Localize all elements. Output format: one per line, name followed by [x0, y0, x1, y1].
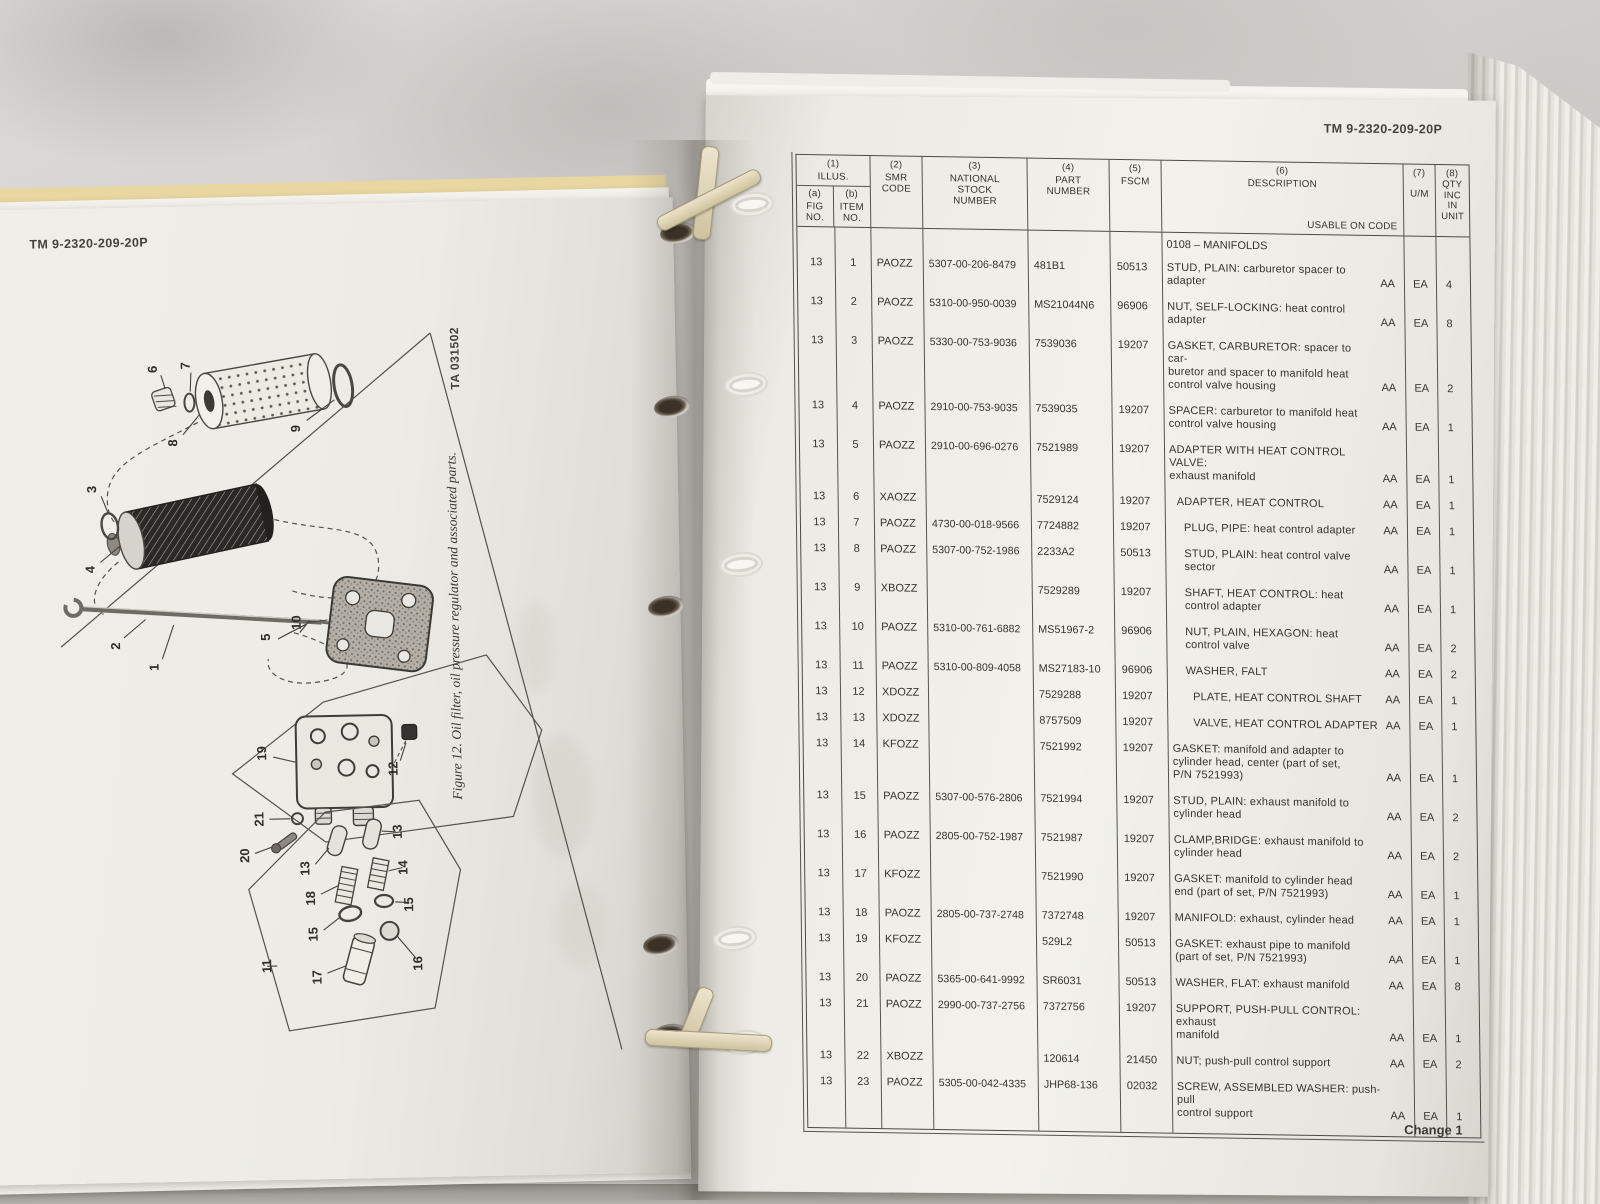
cell-qty: 2 [1446, 1059, 1479, 1086]
usable-on-code: AA [1386, 720, 1401, 733]
cell-part: 7521990 [1036, 871, 1118, 911]
cell-desc: NUT, SELF-LOCKING: heat controladapterAA [1163, 301, 1406, 344]
cell-fig: 13 [805, 828, 843, 868]
cell-desc: PLATE, HEAT CONTROL SHAFTAA [1168, 691, 1410, 721]
cell-smr: PAOZZ [874, 439, 927, 492]
part-label-18: 18 [303, 891, 318, 906]
cell-part: 7539036 [1030, 338, 1113, 404]
cell-fig: 13 [799, 334, 838, 400]
cell-item: 18 [844, 907, 880, 934]
cell-fscm: 19207 [1115, 586, 1167, 626]
header-um: (7)U/M [1404, 164, 1437, 236]
cell-desc: ADAPTER WITH HEAT CONTROL VALVE:exhaust … [1165, 444, 1408, 500]
cell-fscm: 19207 [1118, 833, 1170, 873]
header-nsn: (3)NATIONAL STOCK NUMBER [922, 157, 1028, 230]
cell-nsn: 2805-00-737-2748 [932, 908, 1037, 936]
cell-part: 7724882 [1032, 520, 1114, 547]
cell-fig: 13 [805, 867, 843, 907]
cell-nsn [928, 583, 1033, 624]
cell-desc: MANIFOLD: exhaust, cylinder headAA [1171, 912, 1413, 942]
cell-um: EA [1413, 915, 1445, 942]
cell-qty: 1 [1441, 591, 1474, 631]
cell-um: EA [1408, 551, 1440, 591]
cell-part: 7521994 [1035, 793, 1117, 833]
small-parts-group [325, 817, 400, 986]
cell-smr: XDOZZ [877, 686, 929, 713]
cell-fscm: 50513 [1111, 261, 1163, 301]
cell-nsn: 2910-00-696-0276 [926, 440, 1032, 494]
cell-item: 13 [841, 712, 877, 739]
cell-um: EA [1406, 408, 1438, 448]
cell-nsn: 5330-00-753-9036 [925, 336, 1031, 403]
cell-desc: NUT, PLAIN, HEXAGON: heatcontrol valveAA [1167, 626, 1410, 669]
cell-um: EA [1411, 798, 1443, 838]
cell-smr: PAOZZ [880, 972, 932, 999]
cell-qty: 1 [1442, 695, 1475, 722]
cell-um: EA [1405, 265, 1437, 305]
cell-nsn [929, 687, 1034, 715]
cell-item: 22 [845, 1050, 881, 1077]
cell-fig: 13 [807, 1049, 845, 1076]
cell-item: 7 [839, 517, 875, 544]
part-label-8: 8 [165, 439, 180, 447]
cell-qty: 2 [1441, 630, 1474, 670]
usable-on-code: AA [1381, 382, 1396, 395]
cell-smr: PAOZZ [882, 1076, 935, 1129]
cell-desc: GASKET: exhaust pipe to manifold(part of… [1171, 938, 1414, 981]
cell-fig: 13 [804, 789, 842, 829]
cell-fscm: 19207 [1114, 521, 1166, 548]
cell-item: 23 [846, 1076, 883, 1129]
cell-fig: 13 [806, 971, 844, 998]
cell-um: EA [1411, 746, 1444, 799]
cell-smr: PAOZZ [880, 907, 932, 934]
cell-fig: 13 [801, 542, 839, 582]
part-label-10: 10 [289, 615, 304, 630]
cell-um: EA [1413, 941, 1445, 981]
cell-item: 6 [839, 491, 875, 518]
cell-part: 120614 [1038, 1053, 1120, 1080]
cell-desc: SCREW, ASSEMBLED WASHER: push-pullcontro… [1173, 1081, 1416, 1137]
cell-smr: PAOZZ [877, 660, 929, 687]
usable-on-code: AA [1381, 317, 1396, 330]
cell-um: EA [1407, 447, 1440, 500]
cell-smr: PAOZZ [879, 829, 931, 869]
usable-on-code: AA [1389, 1032, 1404, 1045]
cell-desc: CLAMP,BRIDGE: exhaust manifold tocylinde… [1170, 834, 1413, 877]
cell-item: 19 [844, 933, 880, 973]
cell-fscm: 19207 [1116, 690, 1168, 717]
group-header: 0108 – MANIFOLDS [1166, 239, 1267, 253]
header-part-number: (4)PART NUMBER [1027, 159, 1110, 231]
usable-on-code: AA [1383, 499, 1398, 512]
usable-on-code: AA [1389, 980, 1404, 993]
cell-qty: 2 [1443, 799, 1476, 839]
change-footer: Change 1 [1404, 1122, 1463, 1137]
cell-desc: GASKET, CARBURETOR: spacer to car-bureto… [1164, 340, 1407, 409]
header-qty: (8)QTY INC IN UNIT [1436, 165, 1470, 237]
cell-nsn: 5305-00-042-4335 [934, 1077, 1040, 1131]
cell-smr: PAOZZ [875, 517, 927, 544]
cell-nsn: 5310-00-809-4058 [929, 661, 1034, 689]
cell-fig: 13 [806, 906, 844, 933]
usable-on-code: AA [1383, 525, 1398, 538]
part-label-6: 6 [145, 366, 160, 374]
table-row: 133PAOZZ5330-00-753-9036753903619207GASK… [799, 334, 1472, 410]
cell-desc: STUD, PLAIN: exhaust manifold tocylinder… [1169, 795, 1412, 838]
cell-item: 5 [838, 439, 875, 492]
part-label-15: 15 [306, 927, 321, 942]
cell-item: 2 [836, 296, 872, 336]
cell-fscm: 02032 [1121, 1080, 1174, 1133]
cell-item: 17 [843, 868, 879, 908]
cell-um: EA [1412, 876, 1444, 916]
cell-nsn [932, 934, 1037, 975]
cell-fig: 13 [808, 1075, 847, 1128]
tm-number-left: TM 9-2320-209-20P [29, 235, 148, 251]
cell-fig: 13 [801, 516, 839, 543]
cell-fscm: 19207 [1117, 742, 1170, 795]
parts-table: (1) ILLUS. (a)FIG NO. (b)ITEM NO. (2)SMR… [795, 154, 1481, 1139]
cell-smr: XBOZZ [881, 1050, 933, 1077]
cell-smr: PAOZZ [872, 296, 924, 336]
cell-um: EA [1408, 525, 1440, 552]
cell-part: 7529289 [1033, 585, 1115, 625]
header-illus: (1) ILLUS. (a)FIG NO. (b)ITEM NO. [796, 155, 871, 227]
cell-desc: WASHER, FLAT: exhaust manifoldAA [1171, 977, 1413, 1007]
cell-item: 9 [840, 582, 876, 622]
small-parts-6-7 [151, 386, 195, 412]
cell-fig: 13 [803, 711, 841, 738]
cell-fig: 13 [803, 685, 841, 712]
part-label-4: 4 [83, 565, 98, 573]
part-label-13: 13 [297, 861, 312, 876]
cell-item: 15 [842, 790, 878, 830]
cell-desc: SHAFT, HEAT CONTROL: heatcontrol adapter… [1167, 587, 1410, 630]
cell-qty: 1 [1442, 721, 1475, 748]
cell-qty: 1 [1445, 942, 1478, 982]
cell-um: EA [1405, 304, 1437, 344]
parts-frame-11 [247, 800, 463, 1032]
usable-on-code: AA [1383, 473, 1398, 486]
cell-desc: SPACER: carburetor to manifold heatcontr… [1164, 405, 1407, 448]
cell-fscm: 21450 [1120, 1054, 1172, 1081]
cell-um: EA [1409, 590, 1441, 630]
cell-fig: 13 [802, 620, 840, 660]
cell-fig: 13 [798, 295, 836, 335]
header-fig-no: (a)FIG NO. [797, 186, 834, 227]
page-showthrough [515, 599, 608, 969]
cell-qty: 8 [1445, 981, 1478, 1008]
part-label-3: 3 [84, 486, 99, 494]
cell-desc: STUD, PLAIN: carburetor spacer toadapter… [1163, 262, 1406, 305]
cell-fig: 13 [799, 399, 837, 439]
cell-qty: 1 [1445, 916, 1478, 943]
cell-smr: KFOZZ [879, 868, 931, 908]
cell-desc: VALVE, HEAT CONTROL ADAPTERAA [1168, 717, 1410, 747]
header-smr-code: (2)SMR CODE [870, 156, 923, 228]
cell-qty: 2 [1444, 838, 1477, 878]
cell-nsn: 2805-00-752-1987 [931, 830, 1036, 871]
cell-part: 7521987 [1036, 832, 1118, 872]
part-label-5: 5 [258, 633, 273, 641]
cell-item: 8 [839, 543, 875, 583]
filter-element-dark [102, 482, 278, 574]
table-header: (1) ILLUS. (a)FIG NO. (b)ITEM NO. (2)SMR… [796, 155, 1469, 238]
cell-um: EA [1414, 1058, 1446, 1085]
cell-part: 529L2 [1037, 936, 1119, 976]
cell-nsn [930, 739, 1036, 793]
cell-nsn: 5307-00-206-8479 [924, 258, 1029, 299]
cell-desc: STUD, PLAIN: heat control valvesectorAA [1166, 548, 1409, 591]
part-label-21: 21 [251, 812, 266, 827]
cell-nsn: 5310-00-950-0039 [924, 297, 1029, 338]
usable-on-code: AA [1385, 694, 1400, 707]
usable-on-code: AA [1388, 954, 1403, 967]
cell-nsn: 4730-00-018-9566 [927, 518, 1032, 546]
cell-part: 7521989 [1031, 442, 1114, 495]
cell-fscm: 96906 [1116, 664, 1168, 691]
usable-on-code: AA [1382, 421, 1397, 434]
seal-ring [331, 364, 355, 408]
cell-nsn: 5310-00-761-6882 [928, 622, 1033, 663]
cell-part: 7529288 [1034, 689, 1116, 716]
cell-fig: 13 [801, 490, 839, 517]
cell-item: 20 [844, 972, 880, 999]
usable-on-code: AA [1384, 603, 1399, 616]
cell-smr: PAOZZ [876, 621, 928, 661]
cell-um: EA [1409, 629, 1441, 669]
cell-fscm: 19207 [1112, 404, 1164, 444]
part-label-13b: 13 [390, 824, 405, 839]
cell-qty: 4 [1437, 266, 1470, 306]
cell-fscm: 96906 [1115, 625, 1167, 665]
cell-part: 7539035 [1030, 403, 1112, 443]
cell-desc: WASHER, FALTAA [1168, 665, 1410, 695]
photo-scene: TM 9-2320-209-20P [0, 0, 1600, 1204]
cell-item: 3 [837, 335, 874, 401]
usable-on-code: AA [1387, 850, 1402, 863]
cell-part: 7529124 [1032, 494, 1114, 521]
right-page[interactable]: TM 9-2320-209-20P (1) ILLUS. (a)FIG NO. … [698, 95, 1496, 1196]
cell-smr: PAOZZ [872, 257, 924, 297]
cell-nsn [931, 869, 1036, 910]
usable-on-code: AA [1387, 811, 1402, 824]
cell-qty: 1 [1440, 500, 1473, 527]
plug-12 [402, 724, 417, 739]
cell-smr: PAOZZ [881, 998, 934, 1051]
cell-fig: 13 [803, 659, 841, 686]
cell-part: JHP68-136 [1039, 1079, 1122, 1132]
cell-um: EA [1408, 499, 1440, 526]
cell-um: EA [1410, 720, 1442, 747]
cell-fscm: 96906 [1111, 300, 1163, 340]
gasket-10 [325, 575, 435, 672]
cell-nsn [929, 713, 1034, 741]
cell-item: 16 [843, 829, 879, 869]
cell-nsn: 2990-00-737-2756 [933, 999, 1039, 1053]
part-label-7: 7 [178, 362, 193, 370]
usable-on-code: AA [1388, 915, 1403, 928]
cell-fscm: 19207 [1117, 794, 1169, 834]
cell-desc: GASKET: manifold to cylinder headend (pa… [1170, 873, 1413, 916]
cell-um: EA [1410, 668, 1442, 695]
header-fscm: (5)FSCM [1109, 160, 1162, 232]
cell-fscm: 19207 [1112, 339, 1165, 405]
cell-qty: 2 [1438, 344, 1472, 410]
cell-desc: NUT; push-pull control supportAA [1172, 1055, 1414, 1085]
cell-nsn [933, 1051, 1038, 1079]
cell-fig: 13 [798, 256, 836, 296]
usable-on-code: AA [1385, 668, 1400, 681]
cell-fscm: 19207 [1114, 495, 1166, 522]
cell-qty: 1 [1440, 526, 1473, 553]
cell-nsn: 5307-00-576-2806 [930, 791, 1035, 832]
part-label-11: 11 [259, 959, 274, 973]
cell-fscm: 50513 [1119, 937, 1171, 977]
cell-fig: 13 [804, 737, 843, 790]
cell-um: EA [1410, 694, 1442, 721]
cell-part: 7372748 [1037, 910, 1119, 937]
cell-qty: 2 [1442, 669, 1475, 696]
part-label-17: 17 [309, 970, 324, 985]
cell-smr: PAOZZ [878, 790, 930, 830]
cell-nsn: 5365-00-641-9992 [932, 973, 1037, 1001]
part-label-16: 16 [410, 956, 425, 971]
cell-desc: ADAPTER, HEAT CONTROLAA [1166, 496, 1408, 526]
part-label-12: 12 [385, 761, 400, 776]
cell-item: 10 [840, 621, 876, 661]
part-label-19: 19 [254, 746, 269, 761]
cell-smr: PAOZZ [875, 543, 927, 583]
cell-part: MS51967-2 [1033, 624, 1115, 664]
table-body: 0108 – MANIFOLDS 131PAOZZ5307-00-206-847… [797, 227, 1480, 1138]
cell-item: 11 [841, 660, 877, 687]
cell-nsn: 2910-00-753-9035 [925, 401, 1030, 442]
table-row: 1323PAOZZ5305-00-042-4335JHP68-13602032S… [808, 1075, 1481, 1138]
cell-um: EA [1406, 343, 1439, 409]
cell-fscm: 50513 [1119, 976, 1171, 1003]
cell-fig: 13 [807, 997, 846, 1050]
cell-qty: 1 [1439, 409, 1472, 449]
part-label-1: 1 [146, 664, 161, 672]
cell-fscm: 19207 [1120, 1002, 1173, 1055]
usable-on-code: AA [1386, 772, 1401, 785]
cell-fscm: 19207 [1119, 911, 1171, 938]
cell-smr: XBOZZ [876, 582, 928, 622]
cell-fscm: 50513 [1114, 547, 1166, 587]
cell-qty: 1 [1439, 448, 1473, 501]
cell-part: 8757509 [1034, 715, 1116, 742]
usable-on-code: AA [1390, 1058, 1405, 1071]
cell-fig: 13 [800, 438, 839, 491]
cell-fig: 13 [802, 581, 840, 621]
cell-qty: 1 [1444, 877, 1477, 917]
cell-item: 1 [836, 257, 872, 297]
figure-12-diagram: 1 2 3 4 5 6 7 8 9 10 11 12 13 13 14 15 1… [48, 314, 664, 1185]
cell-smr: XAOZZ [875, 491, 927, 518]
ta-number: TA 031502 [447, 305, 463, 389]
cell-smr: PAOZZ [873, 400, 925, 440]
cell-part: SR6031 [1037, 975, 1119, 1002]
usable-on-code: AA [1384, 564, 1399, 577]
cell-um: EA [1414, 1006, 1447, 1059]
cell-part: 481B1 [1029, 260, 1111, 300]
cell-fscm: 19207 [1118, 872, 1170, 912]
cell-part: MS21044N6 [1029, 299, 1111, 339]
usable-on-code: AA [1390, 1110, 1405, 1123]
cell-part: 7521992 [1035, 741, 1118, 794]
cell-item: 12 [841, 686, 877, 713]
left-page[interactable]: TM 9-2320-209-20P [0, 197, 691, 1185]
cell-qty: 1 [1446, 1007, 1480, 1060]
cell-smr: KFOZZ [878, 738, 931, 791]
cell-qty: 1 [1440, 552, 1473, 592]
cell-smr: PAOZZ [873, 335, 926, 401]
filter-element-perforated [191, 352, 335, 431]
cell-part: MS27183-10 [1034, 663, 1116, 690]
usable-on-code: AA [1380, 278, 1395, 291]
cell-part: 2233A2 [1032, 546, 1114, 586]
part-label-15b: 15 [401, 897, 416, 912]
cell-nsn [927, 492, 1032, 520]
cell-um: EA [1413, 980, 1445, 1007]
cell-smr: KFOZZ [880, 933, 932, 973]
cell-part: 7372756 [1038, 1001, 1121, 1054]
cell-item: 14 [842, 738, 879, 791]
cell-item: 4 [837, 400, 873, 440]
part-label-2: 2 [108, 642, 123, 650]
cell-smr: XDOZZ [877, 712, 929, 739]
cell-qty: 1 [1443, 747, 1477, 800]
part-label-9: 9 [288, 425, 303, 433]
cell-fscm: 19207 [1116, 716, 1168, 743]
cell-fig: 13 [806, 932, 844, 972]
cell-desc: SUPPORT, PUSH-PULL CONTROL: exhaustmanif… [1172, 1003, 1415, 1059]
cell-um: EA [1412, 837, 1444, 877]
cell-desc: GASKET: manifold and adapter tocylinder … [1169, 743, 1412, 799]
header-description: (6)DESCRIPTIONUSABLE ON CODE [1161, 161, 1404, 236]
figure-frame [55, 330, 622, 1060]
cell-desc: PLUG, PIPE: heat control adapterAA [1166, 522, 1408, 552]
header-item-no: (b)ITEM NO. [833, 186, 870, 227]
cell-qty: 8 [1437, 305, 1470, 345]
tm-number-right: TM 9-2320-209-20P [1324, 122, 1443, 137]
part-label-20: 20 [237, 848, 252, 863]
cell-item: 21 [845, 998, 882, 1051]
usable-on-code: AA [1388, 889, 1403, 902]
usable-on-code: AA [1385, 642, 1400, 655]
cell-fscm: 19207 [1113, 443, 1166, 496]
part-label-14: 14 [395, 859, 410, 875]
screw-20 [270, 831, 298, 855]
cell-nsn: 5307-00-752-1986 [927, 544, 1032, 585]
